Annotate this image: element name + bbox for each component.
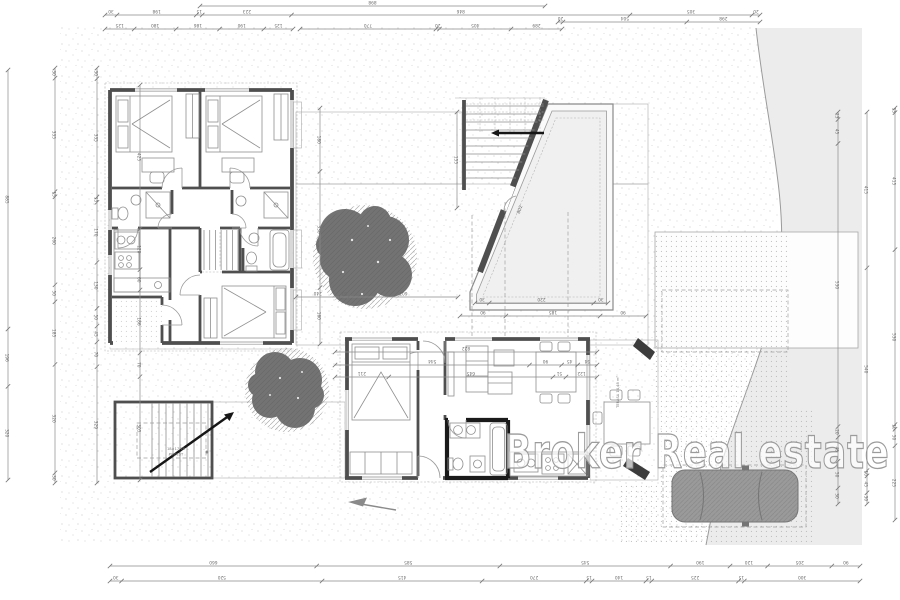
dimension-label: 225 <box>890 479 896 487</box>
dimension-label: 50 <box>50 291 56 297</box>
dimension-label: 335 <box>50 131 56 139</box>
dimension-label: 405 <box>471 22 479 28</box>
dimension-label: 885 <box>3 195 9 203</box>
dimension-label: 190 <box>237 22 245 28</box>
car-mirror <box>742 522 749 527</box>
dimension-label: 415 <box>890 177 896 185</box>
dimension-label: 30 <box>50 70 56 76</box>
dimension-label: 60 <box>135 277 141 283</box>
dimension-label: 125 <box>274 22 282 28</box>
bed <box>206 96 262 152</box>
dimension-chain: 30520415270151401522515300 <box>108 574 862 583</box>
dimension-label: 45 <box>862 482 868 488</box>
dimension-label: 15 <box>646 574 652 580</box>
dimension-label: 50 <box>890 435 896 441</box>
dimension-label: 300 <box>798 574 806 580</box>
dimension-label: 45 <box>567 358 573 364</box>
dimension-label: 170 <box>92 228 98 236</box>
dimension-label: 20 <box>833 429 839 435</box>
dimension-chain: 885196320 <box>3 68 10 482</box>
dimension-label: 30 <box>50 475 56 481</box>
dimension-label: 15 <box>738 574 744 580</box>
dimension-label: 196 <box>3 354 9 362</box>
dimension-label: 223 <box>242 8 250 14</box>
dimension-label: 51 <box>556 370 562 376</box>
dimension-label: 270 <box>530 574 538 580</box>
dimension-label: 530 <box>890 333 896 341</box>
dimension-label: 260 <box>50 237 56 245</box>
dimension-label: 120 <box>135 245 141 253</box>
dimension-label: 30 <box>479 296 485 302</box>
dimension-chain: 30335152605018532030 <box>50 66 57 485</box>
dimension-label: 190 <box>696 559 704 565</box>
gravel-area <box>653 232 790 410</box>
dimension-label: 186 <box>135 317 141 325</box>
dimension-label: 185 <box>549 309 557 315</box>
dimension-label: 198 <box>152 8 160 14</box>
dimension-label: 645 <box>466 370 474 376</box>
stair-note: PODEST <box>169 453 184 457</box>
dimension-label: 30 <box>598 296 604 302</box>
dimension-label: 122 <box>577 370 585 376</box>
dimension-label: 180 <box>315 136 321 144</box>
dimension-label: 186 <box>193 22 201 28</box>
dimension-label: 13 <box>890 108 896 114</box>
dimension-label: 330 <box>315 225 321 233</box>
dimension-label: 130 <box>92 281 98 289</box>
bed <box>116 96 172 152</box>
dimension-label: 305 <box>135 424 141 432</box>
watermark: Broker Real estate <box>505 425 890 479</box>
dimension-label: 54 <box>584 358 590 364</box>
dimension-label: 90 <box>843 559 849 565</box>
dimension-label: 30 <box>113 574 119 580</box>
dimension-label: 30 <box>862 496 868 502</box>
dimension-label: 20 <box>557 15 563 21</box>
dimension-label: 770 <box>364 22 372 28</box>
dimension-label: 20 <box>753 8 759 14</box>
bed <box>222 286 286 338</box>
dimension-chain: 134155301050225 <box>890 106 897 522</box>
dimension-label: 415 <box>862 186 868 194</box>
dimension-label: 320 <box>50 415 56 423</box>
dimension-label: 13 <box>833 113 839 119</box>
dimension-label: 10 <box>862 470 868 476</box>
dimension-label: 45 <box>92 331 98 337</box>
dimension-label: 220 <box>537 296 545 302</box>
dimension-label: 415 <box>398 574 406 580</box>
dimension-label: 540 <box>862 365 868 373</box>
terrace-label: TERASA 14,48 m² <box>616 376 620 409</box>
dimension-label: 425 <box>135 153 141 161</box>
dimension-label: 602 <box>399 290 407 296</box>
dimension-label: 520 <box>217 574 225 580</box>
dimension-label: 140 <box>615 574 623 580</box>
dimension-label: 70 <box>92 352 98 358</box>
dimension-label: 120 <box>744 559 752 565</box>
dimension-label: 45 <box>833 447 839 453</box>
dimension-label: 70 <box>135 362 141 368</box>
dimension-label: 51 <box>341 290 347 296</box>
dimension-label: 15 <box>196 8 202 14</box>
dimension-label: 10 <box>890 424 896 430</box>
dimension-label: 298 <box>719 15 727 21</box>
dimension-label: 822 <box>462 345 470 351</box>
dimension-label: 205 <box>795 559 803 565</box>
dimension-label: 585 <box>404 559 412 565</box>
dimension-label: 504 <box>620 15 628 21</box>
bed <box>352 344 410 420</box>
tree <box>245 348 329 432</box>
dimension-label: 530 <box>833 281 839 289</box>
dimension-label: 125 <box>115 22 123 28</box>
dimension-label: 225 <box>691 574 699 580</box>
dimension-chain: 898 <box>198 0 547 8</box>
dimension-label: 20 <box>435 22 441 28</box>
dimension-label: 211 <box>357 370 365 376</box>
dimension-label: 898 <box>368 0 376 5</box>
dimension-label: 305 <box>687 8 695 14</box>
floor-plan: TERASA 14,48 m² 18×17/28 PODEST <box>0 0 900 600</box>
dimension-chain: 66058554519012020590 <box>108 559 862 568</box>
dimension-label: 185 <box>50 329 56 337</box>
dimension-chain: 20504298 <box>556 15 762 24</box>
dimension-label: 15 <box>92 197 98 203</box>
dimension-label: 160 <box>315 312 321 320</box>
dimension-label: 15 <box>50 191 56 197</box>
dimension-label: 30 <box>108 8 114 14</box>
upper-building <box>109 88 302 349</box>
dimension-label: 50 <box>92 314 98 320</box>
stair-note: 18×17/28 <box>167 447 186 451</box>
dimension-chain: 301981522384630520 <box>103 8 762 17</box>
dimension-label: 30 <box>92 71 98 77</box>
dimension-label: 544 <box>428 358 436 364</box>
dimension-label: 320 <box>3 429 9 437</box>
dimension-label: 45 <box>833 129 839 135</box>
dimension-label: 846 <box>456 8 464 14</box>
dimension-label: 30 <box>833 493 839 499</box>
dimension-label: 335 <box>92 134 98 142</box>
dimension-label: 155 <box>452 156 458 164</box>
dimension-label: 50 <box>833 472 839 478</box>
dimension-label: 90 <box>480 309 486 315</box>
dimension-label: 289 <box>532 22 540 28</box>
dimension-label: 240 <box>313 290 321 296</box>
dimension-label: 15 <box>586 574 592 580</box>
dimension-label: 90 <box>543 358 549 364</box>
dimension-label: 180 <box>151 22 159 28</box>
dimension-label: 90 <box>620 309 626 315</box>
dimension-label: 545 <box>581 559 589 565</box>
dimension-label: 329 <box>92 421 98 429</box>
dimension-label: 660 <box>209 559 217 565</box>
